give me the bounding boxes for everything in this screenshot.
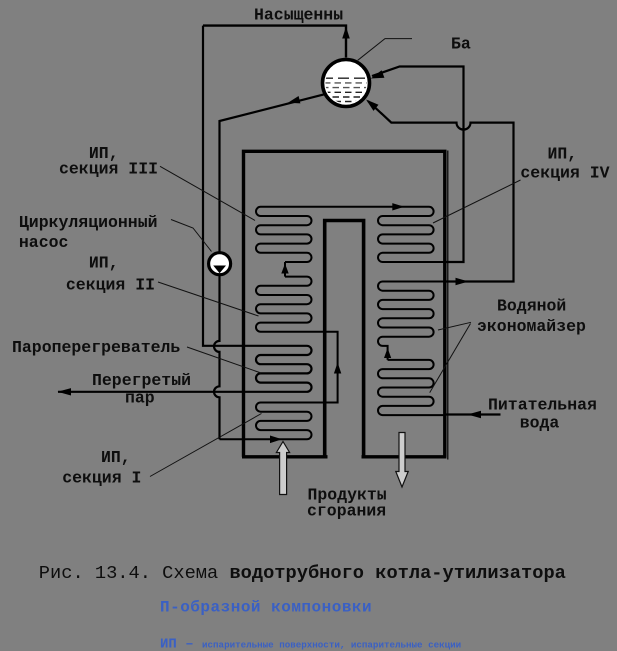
svg-text:Пароперегреватель: Пароперегреватель	[12, 338, 180, 357]
svg-text:секция I: секция I	[62, 469, 141, 488]
svg-text:П-образной компоновки: П-образной компоновки	[160, 599, 372, 617]
svg-text:секция II: секция II	[66, 275, 155, 294]
svg-text:экономайзер: экономайзер	[477, 317, 586, 336]
svg-text:Перегретый: Перегретый	[92, 371, 191, 390]
svg-text:Ба: Ба	[451, 35, 471, 54]
svg-text:Водяной: Водяной	[497, 297, 566, 316]
svg-text:ИП,: ИП,	[548, 145, 578, 164]
svg-text:насос: насос	[19, 233, 69, 252]
svg-text:Насыщенны: Насыщенны	[254, 6, 343, 25]
svg-text:секция III: секция III	[59, 159, 158, 178]
svg-text:Питательная: Питательная	[488, 396, 597, 415]
svg-text:пар: пар	[125, 389, 155, 408]
svg-text:ИП,: ИП,	[101, 448, 131, 467]
svg-text:секция IV: секция IV	[520, 164, 609, 183]
svg-text:Циркуляционный: Циркуляционный	[19, 213, 158, 232]
svg-text:ИП – испарительные поверхности: ИП – испарительные поверхности, испарите…	[160, 637, 461, 651]
svg-text:ИП,: ИП,	[89, 253, 119, 272]
svg-text:вода: вода	[520, 414, 560, 433]
svg-text:Рис. 13.4. Схема водотрубного: Рис. 13.4. Схема водотрубного котла-утил…	[39, 562, 566, 584]
svg-text:сгорания: сгорания	[307, 502, 386, 521]
